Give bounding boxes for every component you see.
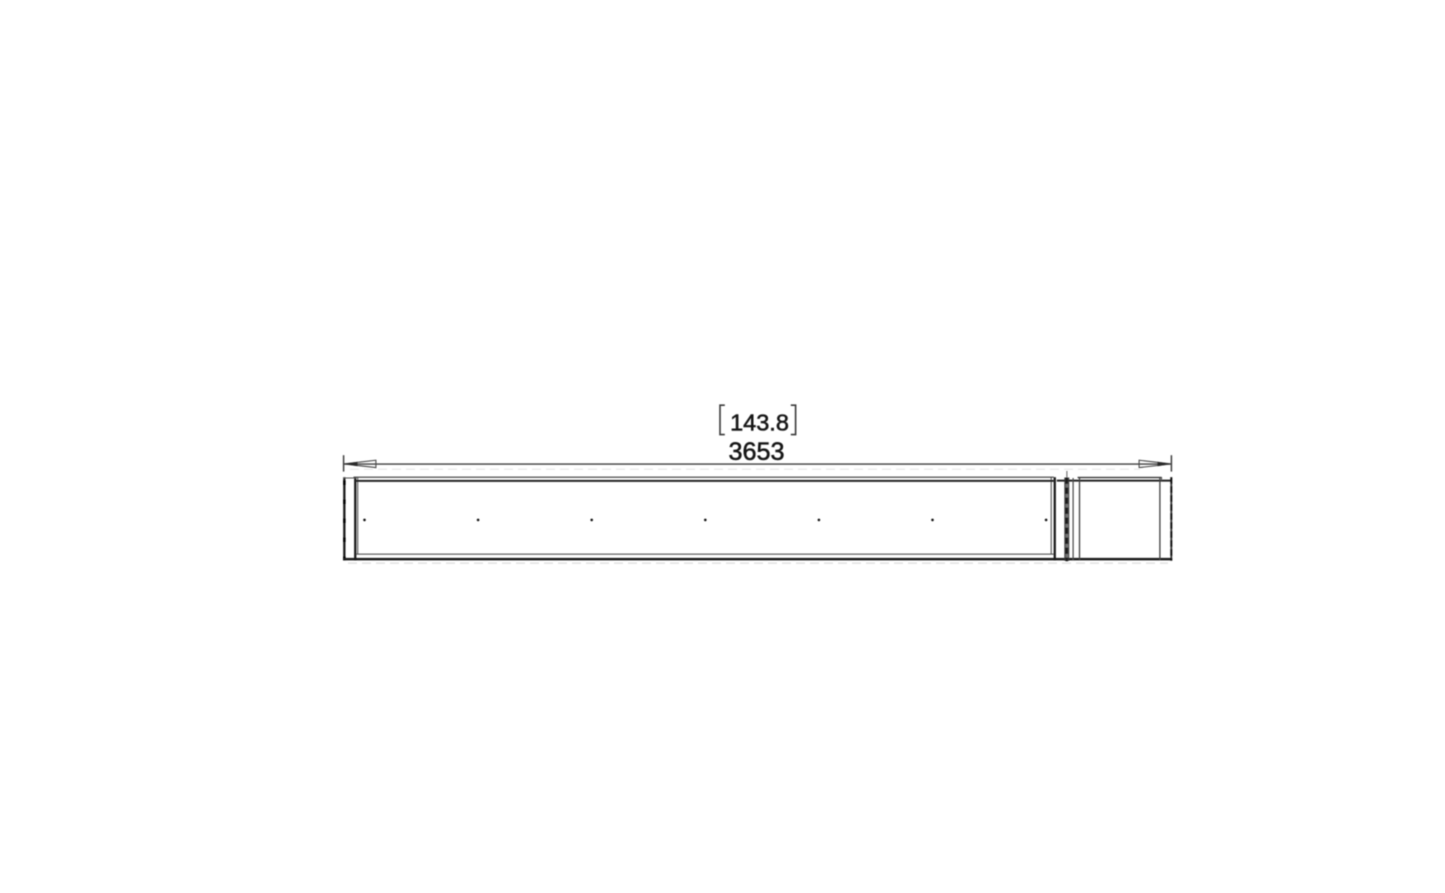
svg-text:143.8: 143.8: [730, 410, 789, 436]
svg-text:3653: 3653: [728, 438, 784, 466]
